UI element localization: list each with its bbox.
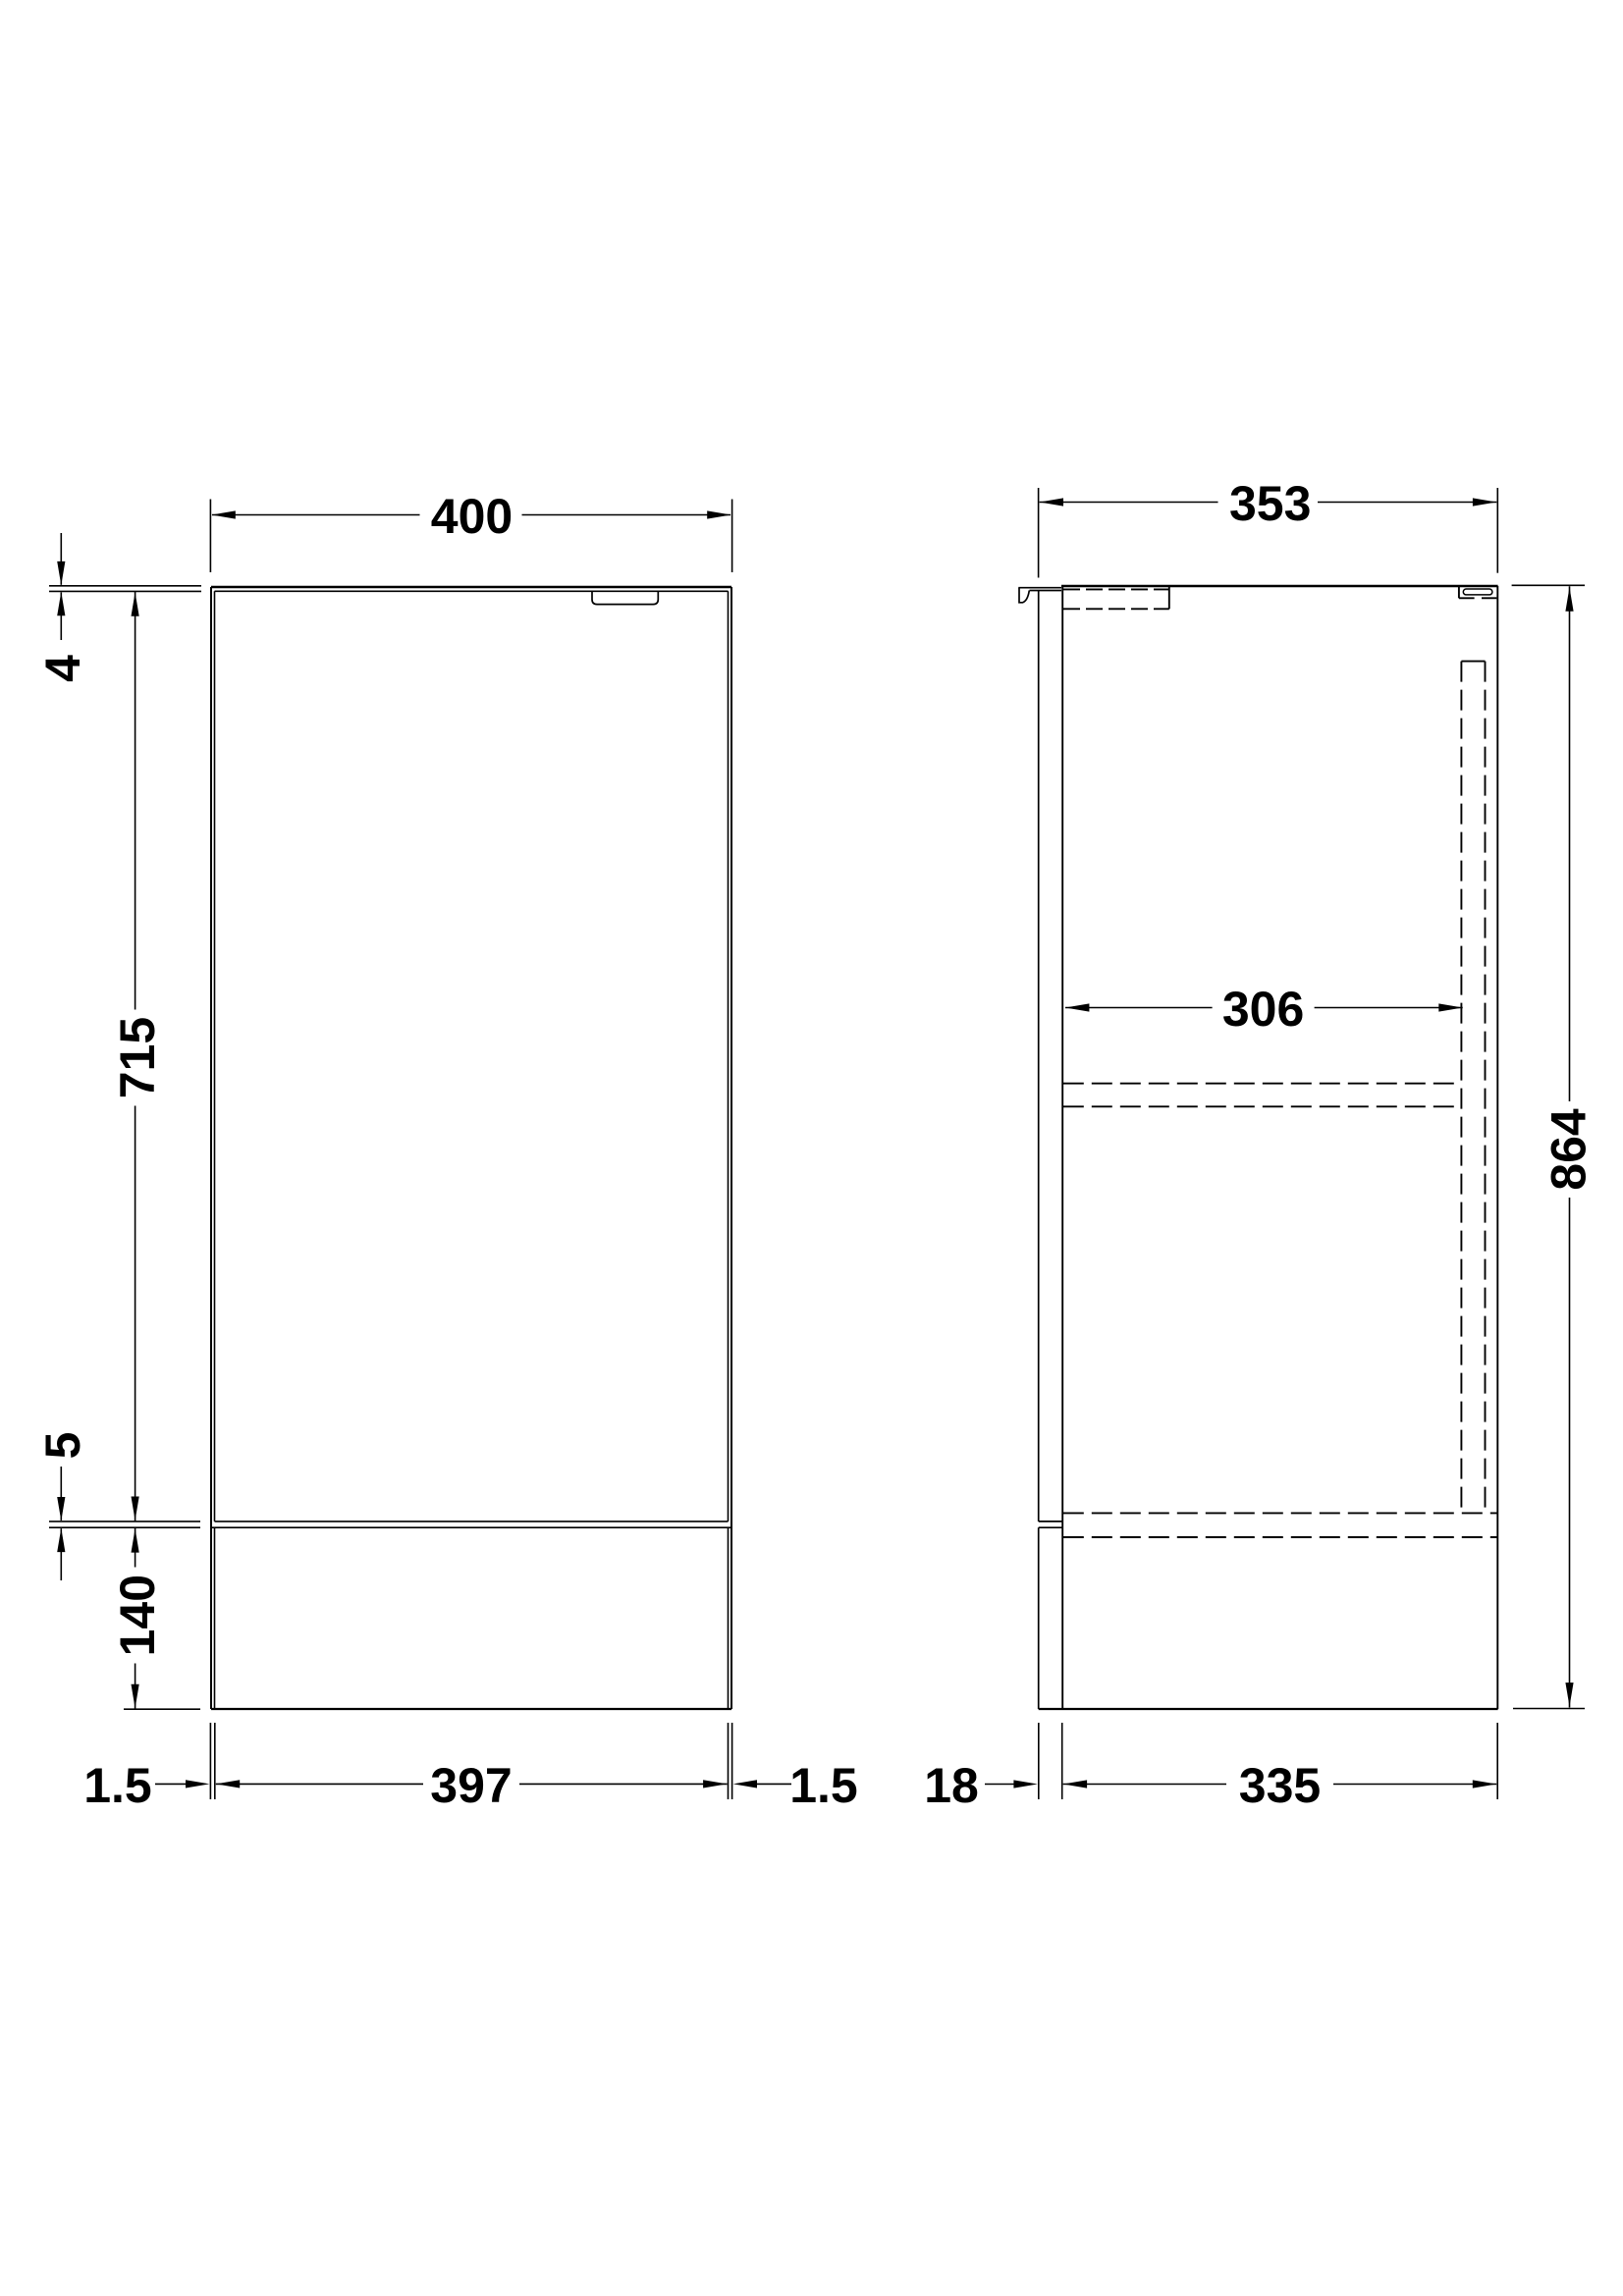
svg-text:4: 4 xyxy=(35,655,90,682)
svg-text:5: 5 xyxy=(35,1432,90,1460)
svg-text:353: 353 xyxy=(1229,476,1311,531)
svg-text:397: 397 xyxy=(430,1758,512,1813)
svg-text:1.5: 1.5 xyxy=(789,1758,858,1813)
svg-text:400: 400 xyxy=(431,489,513,544)
svg-text:18: 18 xyxy=(924,1758,979,1813)
svg-text:335: 335 xyxy=(1239,1758,1321,1813)
svg-text:306: 306 xyxy=(1222,982,1304,1037)
svg-text:140: 140 xyxy=(110,1575,165,1656)
svg-text:715: 715 xyxy=(110,1017,165,1098)
svg-text:864: 864 xyxy=(1542,1108,1596,1191)
svg-text:1.5: 1.5 xyxy=(83,1758,152,1813)
